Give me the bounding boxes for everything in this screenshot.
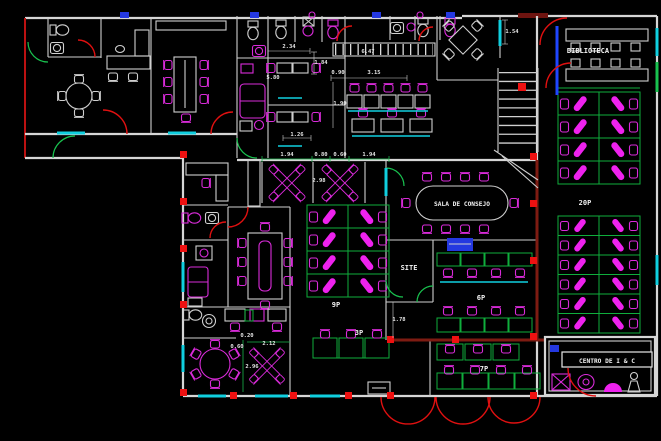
dim-0-80: 0.80 [314,152,327,158]
three-person-row [313,330,389,358]
biblioteca-room [557,26,648,95]
dim-1-90: 1.90 [333,101,346,107]
centro-room [545,337,655,395]
dim-3-15: 3.15 [367,70,380,76]
dim-2-34: 2.34 [282,44,296,50]
executive-suite [50,21,226,122]
capacity-label-9p: 9P [332,301,340,309]
dim-5-80: 5.80 [266,75,279,81]
dim-1-78: 1.78 [392,317,405,323]
capacity-label-6p: 6P [477,294,485,302]
door-swings-green [28,42,433,302]
dim-0-60-bottom: 0.60 [230,344,243,350]
left-rooms [182,163,286,331]
dim-2-96: 2.96 [245,364,259,370]
room-label-site: SITE [401,264,418,272]
cubicle-bank-right-bottom [558,216,640,333]
seven-person-room [368,344,540,394]
cubicle-bank-right-top [558,88,640,184]
capacity-label-7p: 7P [480,365,488,373]
door-swings-red [78,18,596,424]
dim-1-94-right: 1.94 [362,152,376,158]
dim-1-54: 1.54 [505,29,519,35]
dim-6-47: 6.47 [361,49,374,55]
training-room-rows [437,253,532,332]
dim-0-90: 0.90 [331,70,344,76]
center-conference-room [238,223,293,310]
column-markers [180,83,537,399]
capacity-label-20p: 20P [579,199,592,207]
bathrooms [248,17,455,57]
lounge-column [240,64,265,131]
corner-meeting-room [442,19,483,60]
locker-counter [333,43,435,56]
room-label-biblioteca: BIBLIOTECA [567,47,610,55]
dim-2-98: 2.98 [312,178,325,184]
dim-1-26: 1.26 [290,132,304,138]
room-label-centro: CENTRO DE I & C [579,358,635,365]
dim-1-94-left: 1.94 [280,152,294,158]
capacity-label-3p: 3P [355,329,363,337]
open-office [347,84,432,132]
dim-0-20: 0.20 [240,333,253,339]
floor-plan-canvas: BIBLIOTECA SALA DE CONSEJO SITE CENTRO D… [0,0,661,441]
room-label-sala-de-consejo: SALA DE CONSEJO [434,201,490,208]
dim-0-60-top: 0.60 [333,152,346,158]
cubicle-bank-center [307,205,389,297]
site-room [447,238,473,251]
small-offices [267,63,321,122]
dim-1-84: 1.84 [314,60,328,66]
stairs [494,68,538,188]
dim-2-12: 2.12 [262,341,275,347]
